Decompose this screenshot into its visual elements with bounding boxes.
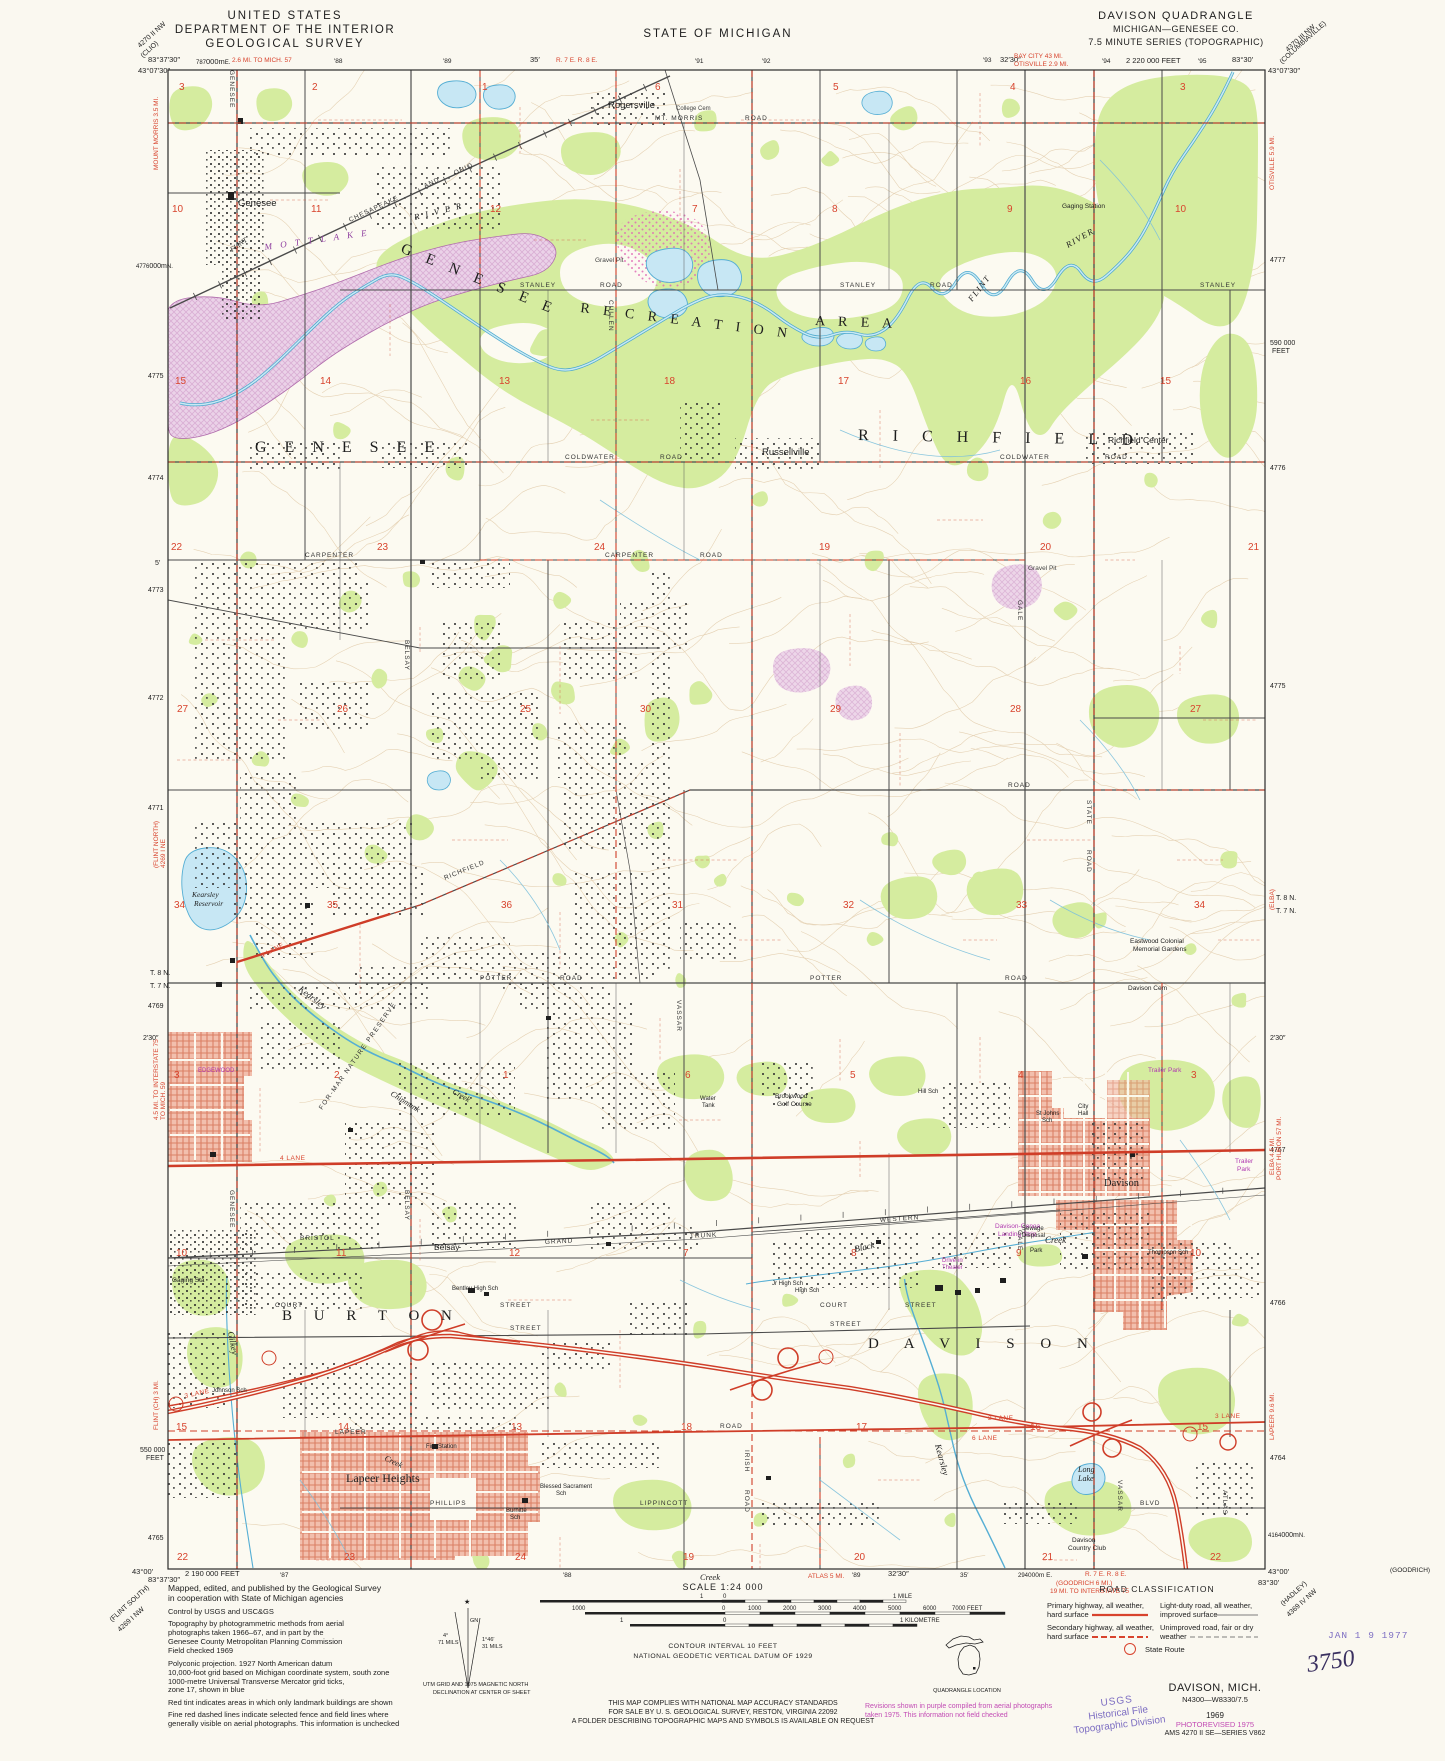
svg-text:G E N E S E E: G E N E S E E	[255, 439, 441, 456]
svg-text:′93: ′93	[983, 57, 992, 64]
svg-text:ROAD: ROAD	[743, 1490, 750, 1513]
svg-text:in cooperation with State of M: in cooperation with State of Michigan ag…	[168, 1593, 343, 1603]
svg-text:11: 11	[336, 1248, 347, 1259]
svg-text:12: 12	[509, 1248, 521, 1259]
svg-text:23: 23	[344, 1552, 356, 1563]
svg-text:Davison Cem: Davison Cem	[1128, 985, 1167, 992]
svg-text:4765: 4765	[148, 1535, 164, 1542]
svg-text:CARPENTER: CARPENTER	[305, 552, 354, 559]
svg-text:18: 18	[681, 1422, 693, 1433]
svg-text:zone 17, shown in blue: zone 17, shown in blue	[168, 1685, 245, 1694]
svg-text:28: 28	[1010, 704, 1022, 715]
svg-text:STREET: STREET	[500, 1302, 532, 1309]
svg-text:4775: 4775	[148, 373, 164, 380]
svg-text:15: 15	[1197, 1422, 1209, 1433]
svg-text:College Cem: College Cem	[676, 106, 711, 112]
svg-text:Jr High Sch: Jr High Sch	[772, 1281, 803, 1287]
svg-text:DAVISON, MICH.: DAVISON, MICH.	[1169, 1682, 1262, 1694]
svg-text:35′: 35′	[530, 55, 540, 64]
svg-text:TRUNK: TRUNK	[690, 1232, 718, 1240]
svg-text:590 000: 590 000	[1270, 340, 1295, 347]
svg-text:16: 16	[1030, 1422, 1042, 1433]
svg-text:18: 18	[664, 376, 676, 387]
svg-text:1°46′: 1°46′	[482, 1637, 494, 1643]
svg-text:10: 10	[172, 204, 184, 215]
svg-text:Drive-in: Drive-in	[942, 1258, 963, 1264]
svg-text:3000: 3000	[818, 1606, 832, 1612]
svg-text:OTISVILLE 2.9 MI.: OTISVILLE 2.9 MI.	[1014, 61, 1069, 68]
svg-text:10: 10	[176, 1248, 188, 1259]
svg-text:MOUNT MORRIS 3.5 MI.: MOUNT MORRIS 3.5 MI.	[153, 97, 160, 170]
svg-text:STATE OF MICHIGAN: STATE OF MICHIGAN	[643, 28, 792, 40]
svg-text:Creek: Creek	[1045, 1235, 1067, 1245]
svg-text:294000m E.: 294000m E.	[1018, 1572, 1052, 1579]
svg-text:Trailer: Trailer	[1235, 1158, 1254, 1165]
svg-text:83°30′: 83°30′	[1232, 55, 1254, 64]
svg-text:Eastwood Colonial: Eastwood Colonial	[1130, 938, 1184, 945]
svg-text:3: 3	[174, 1070, 180, 1081]
svg-text:CARPENTER: CARPENTER	[605, 552, 654, 559]
svg-text:CULLEN: CULLEN	[607, 300, 614, 332]
svg-text:COURT: COURT	[275, 1302, 303, 1309]
svg-text:TO MICH. 59: TO MICH. 59	[160, 1081, 167, 1120]
svg-text:Fine red dashed lines indicate: Fine red dashed lines indicate selected …	[168, 1710, 389, 1719]
svg-text:4772: 4772	[148, 695, 164, 702]
svg-text:Richfield Center: Richfield Center	[1108, 435, 1169, 445]
svg-text:16: 16	[1020, 376, 1032, 387]
svg-text:25: 25	[520, 704, 532, 715]
svg-text:23: 23	[377, 542, 389, 553]
svg-text:′92: ′92	[762, 58, 771, 65]
svg-text:7.5 MINUTE SERIES (TOPOGRAPHIC: 7.5 MINUTE SERIES (TOPOGRAPHIC)	[1088, 37, 1263, 47]
svg-text:71 MILS: 71 MILS	[438, 1640, 459, 1646]
svg-text:ROAD: ROAD	[660, 454, 683, 461]
svg-text:4: 4	[1010, 82, 1016, 93]
svg-text:26: 26	[337, 704, 349, 715]
svg-text:2 LANE: 2 LANE	[988, 1415, 1014, 1422]
svg-text:MICHIGAN—GENESEE CO.: MICHIGAN—GENESEE CO.	[1113, 24, 1239, 34]
svg-text:4775: 4775	[1270, 683, 1286, 690]
svg-text:State Route: State Route	[1145, 1645, 1185, 1654]
svg-text:FEET: FEET	[1272, 348, 1291, 355]
svg-text:Polyconic projection. 1927 N: Polyconic projection. 1927 North America…	[168, 1659, 332, 1668]
svg-text:Sch: Sch	[1042, 1118, 1052, 1124]
svg-text:GEOLOGICAL SURVEY: GEOLOGICAL SURVEY	[205, 38, 364, 50]
svg-text:32: 32	[843, 900, 855, 911]
svg-text:Trailer Park: Trailer Park	[1148, 1067, 1182, 1074]
svg-text:4164000mN.: 4164000mN.	[1268, 1532, 1305, 1539]
svg-text:9: 9	[1007, 204, 1013, 215]
svg-text:8: 8	[832, 204, 838, 215]
svg-text:550 000: 550 000	[140, 1447, 165, 1454]
svg-text:VASSAR: VASSAR	[1116, 1480, 1123, 1512]
svg-text:taken 1975. This information: taken 1975. This information not field c…	[865, 1712, 1008, 1719]
svg-text:(FLINT NORTH): (FLINT NORTH)	[153, 821, 160, 868]
svg-text:31: 31	[672, 900, 684, 911]
svg-text:ROAD: ROAD	[1005, 975, 1028, 982]
svg-text:Belsay: Belsay	[434, 1242, 460, 1252]
svg-text:NATIONAL GEODETIC VERTICAL DAT: NATIONAL GEODETIC VERTICAL DATUM OF 1929	[633, 1653, 812, 1660]
svg-text:T. 8 N.: T. 8 N.	[150, 970, 170, 977]
svg-text:BAY CITY 43 MI.: BAY CITY 43 MI.	[1014, 53, 1063, 60]
svg-text:4.5 MI. TO INTERSTATE 75: 4.5 MI. TO INTERSTATE 75	[153, 1039, 160, 1120]
svg-text:Davison: Davison	[1104, 1178, 1140, 1189]
svg-text:Brookwood: Brookwood	[775, 1093, 808, 1100]
svg-text:17: 17	[838, 376, 850, 387]
svg-text:10,000-foot grid based on Mich: 10,000-foot grid based on Michigan coord…	[168, 1668, 389, 1677]
svg-text:6: 6	[685, 1070, 691, 1081]
svg-text:BRISTOL: BRISTOL	[300, 1235, 335, 1242]
svg-text:Topography by photogrammetric: Topography by photogrammetric methods fr…	[168, 1619, 344, 1628]
svg-text:Park: Park	[1237, 1166, 1251, 1173]
svg-text:DEPARTMENT OF THE INTERIOR: DEPARTMENT OF THE INTERIOR	[175, 24, 395, 36]
svg-text:COLDWATER: COLDWATER	[1000, 454, 1050, 461]
svg-text:STREET: STREET	[830, 1321, 862, 1328]
svg-text:4766: 4766	[1270, 1300, 1286, 1307]
svg-text:4771: 4771	[148, 805, 164, 812]
svg-text:4764: 4764	[1270, 1455, 1286, 1462]
svg-text:Red tint indicates areas in wh: Red tint indicates areas in which only l…	[168, 1698, 393, 1707]
svg-text:AMS 4270 II SE—SERIES V862: AMS 4270 II SE—SERIES V862	[1165, 1730, 1266, 1737]
svg-text:Secondary highway, all weather: Secondary highway, all weather,	[1047, 1623, 1154, 1632]
svg-text:ELBA 4.5 MI.: ELBA 4.5 MI.	[1269, 1137, 1276, 1175]
svg-text:LAPEER 9.6 MI.: LAPEER 9.6 MI.	[1269, 1392, 1276, 1440]
svg-text:′89: ′89	[852, 1572, 861, 1579]
svg-text:Thompson Sch: Thompson Sch	[1148, 1250, 1188, 1256]
svg-text:3 LANE: 3 LANE	[1215, 1413, 1241, 1420]
svg-text:Theater: Theater	[942, 1265, 963, 1271]
svg-text:photographs taken 1966–67, and: photographs taken 1966–67, and in part b…	[168, 1628, 324, 1637]
svg-text:★: ★	[464, 1598, 470, 1606]
svg-text:5000: 5000	[888, 1606, 902, 1612]
svg-text:POTTER: POTTER	[810, 975, 842, 982]
svg-text:2.6 MI. TO MICH. 57: 2.6 MI. TO MICH. 57	[232, 57, 292, 64]
svg-text:STANLEY: STANLEY	[840, 282, 876, 289]
svg-text:STATE: STATE	[1085, 800, 1092, 825]
svg-text:PHOTOREVISED 1975: PHOTOREVISED 1975	[1176, 1720, 1254, 1729]
svg-text:ROAD: ROAD	[600, 282, 623, 289]
svg-text:COURT: COURT	[820, 1302, 848, 1309]
svg-text:2: 2	[312, 82, 318, 93]
svg-text:4269 I NE: 4269 I NE	[160, 838, 167, 868]
svg-text:improved surface: improved surface	[1160, 1610, 1218, 1619]
svg-text:Control by USGS and USC&GS: Control by USGS and USC&GS	[168, 1607, 274, 1616]
svg-text:ROAD: ROAD	[700, 552, 723, 559]
svg-text:Reservoir: Reservoir	[193, 899, 223, 908]
svg-text:3: 3	[1191, 1070, 1197, 1081]
svg-text:VASSAR: VASSAR	[675, 1000, 682, 1032]
svg-text:35′: 35′	[960, 1572, 969, 1579]
svg-text:6000: 6000	[923, 1606, 937, 1612]
svg-text:Lapeer Heights: Lapeer Heights	[346, 1471, 420, 1485]
svg-text:43°07′30″: 43°07′30″	[138, 66, 170, 75]
svg-text:29: 29	[830, 704, 842, 715]
svg-text:19: 19	[819, 542, 831, 553]
svg-text:generally visible on aerial ph: generally visible on aerial photographs.…	[168, 1719, 399, 1728]
svg-text:19: 19	[683, 1552, 695, 1563]
svg-text:Hall: Hall	[1078, 1111, 1088, 1117]
svg-text:Water: Water	[700, 1096, 716, 1102]
svg-text:Hill Sch: Hill Sch	[918, 1089, 938, 1095]
svg-text:PORT HURON 57 MI.: PORT HURON 57 MI.	[1276, 1116, 1283, 1180]
svg-text:6: 6	[655, 82, 661, 93]
svg-text:Field checked 1969: Field checked 1969	[168, 1646, 233, 1655]
svg-text:27: 27	[1190, 704, 1202, 715]
svg-text:7000 FEET: 7000 FEET	[952, 1606, 983, 1612]
svg-text:ATLAS 5 MI.: ATLAS 5 MI.	[808, 1573, 845, 1580]
svg-text:Lake: Lake	[1077, 1474, 1094, 1483]
svg-text:LAPEER: LAPEER	[335, 1429, 367, 1436]
svg-text:7: 7	[683, 1248, 689, 1259]
svg-text:13: 13	[511, 1422, 523, 1433]
svg-text:1 KILOMETRE: 1 KILOMETRE	[900, 1618, 940, 1624]
svg-text:hard surface: hard surface	[1047, 1610, 1089, 1619]
svg-text:10: 10	[1175, 204, 1187, 215]
svg-text:Golf Course: Golf Course	[777, 1101, 812, 1108]
svg-text:1969: 1969	[1206, 1711, 1224, 1720]
svg-text:Davison: Davison	[1072, 1537, 1096, 1544]
svg-text:CONTOUR INTERVAL 10 FEET: CONTOUR INTERVAL 10 FEET	[668, 1643, 777, 1650]
svg-text:′94: ′94	[1102, 58, 1111, 65]
svg-text:14: 14	[320, 376, 332, 387]
svg-text:UTM GRID AND 1975 MAGNETIC NOR: UTM GRID AND 1975 MAGNETIC NORTH	[423, 1682, 528, 1688]
svg-text:STANLEY: STANLEY	[520, 282, 556, 289]
svg-text:Unimproved road, fair or dry: Unimproved road, fair or dry	[1160, 1623, 1254, 1632]
svg-text:6 LANE: 6 LANE	[972, 1435, 998, 1442]
svg-text:N4300—W8330/7.5: N4300—W8330/7.5	[1182, 1695, 1248, 1704]
svg-text:21: 21	[1042, 1552, 1054, 1563]
svg-text:ROAD CLASSIFICATION: ROAD CLASSIFICATION	[1099, 1584, 1214, 1594]
svg-text:ROAD: ROAD	[1085, 850, 1092, 873]
svg-text:3: 3	[179, 82, 185, 93]
svg-text:BELSAY: BELSAY	[403, 640, 410, 671]
svg-text:OTISVILLE 5.9 MI.: OTISVILLE 5.9 MI.	[1269, 135, 1276, 190]
svg-text:GN: GN	[470, 1618, 478, 1624]
svg-text:A FOLDER DESCRIBING TOPOGRAPHI: A FOLDER DESCRIBING TOPOGRAPHIC MAPS AND…	[572, 1718, 875, 1725]
svg-text:ROAD: ROAD	[745, 115, 768, 122]
svg-text:15: 15	[176, 1422, 188, 1433]
svg-text:2000: 2000	[783, 1606, 797, 1612]
svg-text:4°: 4°	[443, 1633, 448, 1639]
svg-text:43°00′: 43°00′	[1268, 1567, 1290, 1576]
svg-text:Creek: Creek	[700, 1572, 720, 1582]
svg-text:BELSAY: BELSAY	[403, 1190, 410, 1221]
svg-text:1000: 1000	[572, 1606, 586, 1612]
svg-text:32′30″: 32′30″	[888, 1569, 909, 1578]
svg-text:10: 10	[1190, 1248, 1202, 1259]
svg-text:′88: ′88	[334, 58, 343, 65]
svg-text:24: 24	[515, 1552, 527, 1563]
svg-text:12: 12	[490, 204, 502, 215]
svg-text:Burhitte: Burhitte	[506, 1508, 527, 1514]
svg-text:Kearsley: Kearsley	[191, 890, 219, 899]
svg-text:STREET: STREET	[905, 1302, 937, 1309]
svg-text:2 220 000 FEET: 2 220 000 FEET	[1126, 56, 1181, 65]
svg-text:(GOODRICH): (GOODRICH)	[1390, 1567, 1430, 1574]
svg-text:20: 20	[1040, 542, 1052, 553]
svg-text:Genesee County Metropolitan Pl: Genesee County Metropolitan Planning Com…	[168, 1637, 342, 1646]
svg-text:Long: Long	[1077, 1465, 1094, 1474]
svg-text:Russellville: Russellville	[762, 447, 810, 458]
svg-text:Gaging Sta: Gaging Sta	[172, 1277, 205, 1284]
svg-text:T. 8 N.: T. 8 N.	[1276, 895, 1296, 902]
svg-text:weather: weather	[1159, 1632, 1187, 1641]
svg-text:City: City	[1078, 1104, 1088, 1110]
svg-text:Revisions shown in purple comp: Revisions shown in purple compiled from …	[865, 1703, 1053, 1710]
svg-text:DAVISON QUADRANGLE: DAVISON QUADRANGLE	[1098, 10, 1254, 22]
svg-text:Tank: Tank	[702, 1103, 716, 1109]
svg-text:20: 20	[854, 1552, 866, 1563]
svg-text:IRISH: IRISH	[743, 1450, 750, 1472]
svg-text:′87: ′87	[280, 1572, 289, 1579]
svg-text:(ELBA): (ELBA)	[1269, 889, 1276, 910]
svg-text:17: 17	[856, 1422, 868, 1433]
svg-text:D A V I S O N: D A V I S O N	[868, 1336, 1099, 1352]
svg-text:4777: 4777	[1270, 257, 1286, 264]
svg-text:THIS MAP COMPLIES WITH NATIONA: THIS MAP COMPLIES WITH NATIONAL MAP ACCU…	[608, 1700, 838, 1707]
svg-text:Rogersville: Rogersville	[608, 100, 655, 111]
svg-text:QUADRANGLE LOCATION: QUADRANGLE LOCATION	[933, 1688, 1001, 1694]
svg-text:4776: 4776	[1270, 465, 1286, 472]
svg-text:Mapped, edited, and published: Mapped, edited, and published by the Geo…	[168, 1583, 382, 1593]
svg-text:5: 5	[833, 82, 839, 93]
svg-text:Johnson Sch: Johnson Sch	[212, 1388, 247, 1394]
svg-text:Bentley High Sch: Bentley High Sch	[452, 1286, 498, 1292]
svg-text:2′30″: 2′30″	[1270, 1035, 1286, 1042]
svg-text:GENESEE: GENESEE	[228, 1190, 235, 1228]
svg-text:Genesee: Genesee	[238, 198, 277, 209]
svg-text:43°07′30″: 43°07′30″	[1268, 66, 1300, 75]
svg-text:4769: 4769	[148, 1003, 164, 1010]
svg-text:Park: Park	[1030, 1248, 1043, 1254]
svg-text:24: 24	[594, 542, 606, 553]
svg-text:Sewage: Sewage	[1022, 1226, 1044, 1232]
svg-text:1 MILE: 1 MILE	[893, 1594, 912, 1600]
svg-text:Primary highway, all weather,: Primary highway, all weather,	[1047, 1601, 1144, 1610]
svg-text:Gaging Station: Gaging Station	[1062, 203, 1105, 210]
svg-text:2′30″: 2′30″	[143, 1035, 159, 1042]
svg-text:A R E A: A R E A	[815, 314, 898, 332]
svg-text:11: 11	[311, 204, 322, 215]
svg-text:34: 34	[174, 900, 186, 911]
svg-text:Country Club: Country Club	[1068, 1545, 1106, 1552]
svg-text:BLVD: BLVD	[1140, 1500, 1161, 1507]
svg-text:T. 7 N.: T. 7 N.	[1276, 908, 1296, 915]
svg-text:Sch: Sch	[556, 1491, 566, 1497]
svg-text:STANLEY: STANLEY	[1200, 282, 1236, 289]
svg-text:13: 13	[499, 376, 511, 387]
svg-text:hard surface: hard surface	[1047, 1632, 1089, 1641]
svg-text:15: 15	[1160, 376, 1172, 387]
svg-text:ATLAS: ATLAS	[1221, 1490, 1228, 1515]
svg-text:R. 7 E. R. 8 E.: R. 7 E. R. 8 E.	[556, 57, 598, 64]
svg-text:COLDWATER: COLDWATER	[565, 454, 615, 461]
svg-text:UNITED STATES: UNITED STATES	[227, 10, 342, 22]
svg-text:ROAD: ROAD	[560, 975, 583, 982]
svg-text:Memorial Gardens: Memorial Gardens	[1133, 946, 1187, 953]
svg-text:SCALE 1:24 000: SCALE 1:24 000	[682, 1582, 763, 1592]
svg-text:FLINT (CH) 3 MI.: FLINT (CH) 3 MI.	[153, 1380, 160, 1430]
svg-text:Blessed Sacrament: Blessed Sacrament	[540, 1484, 592, 1490]
svg-text:3: 3	[1180, 82, 1186, 93]
svg-text:EDGEWOOD: EDGEWOOD	[198, 1068, 235, 1074]
svg-text:T. 7 N.: T. 7 N.	[150, 983, 170, 990]
svg-text:GRAND: GRAND	[545, 1238, 574, 1246]
svg-text:GALE: GALE	[1016, 600, 1023, 621]
svg-text:R. 7 E. R. 8 E.: R. 7 E. R. 8 E.	[1085, 1571, 1127, 1578]
svg-text:4: 4	[1018, 1070, 1024, 1081]
svg-text:′91: ′91	[695, 58, 704, 65]
svg-text:Gravel Pit: Gravel Pit	[1028, 565, 1057, 572]
svg-text:5: 5	[850, 1070, 856, 1081]
svg-text:Fire Station: Fire Station	[426, 1444, 457, 1450]
svg-text:1: 1	[503, 1070, 509, 1081]
svg-text:33: 33	[1016, 900, 1028, 911]
svg-text:High Sch: High Sch	[795, 1288, 819, 1294]
svg-text:ROAD: ROAD	[720, 1423, 743, 1430]
svg-text:35: 35	[327, 900, 339, 911]
svg-text:MT. MORRIS: MT. MORRIS	[655, 115, 703, 122]
svg-text:34: 34	[1194, 900, 1206, 911]
svg-text:Light-duty road, all weather,: Light-duty road, all weather,	[1160, 1601, 1252, 1610]
svg-text:DECLINATION AT CENTER OF SHEET: DECLINATION AT CENTER OF SHEET	[433, 1690, 531, 1696]
svg-text:22: 22	[171, 542, 183, 553]
svg-text:83°37′30″: 83°37′30″	[148, 55, 180, 64]
svg-text:36: 36	[501, 900, 513, 911]
svg-text:30: 30	[640, 704, 652, 715]
svg-text:31 MILS: 31 MILS	[482, 1644, 503, 1650]
svg-text:7: 7	[692, 204, 698, 215]
svg-text:ROAD: ROAD	[930, 282, 953, 289]
svg-text:5′: 5′	[155, 560, 161, 567]
svg-text:Disposal: Disposal	[1022, 1233, 1045, 1239]
svg-text:1: 1	[482, 82, 488, 93]
svg-text:POTTER: POTTER	[480, 975, 512, 982]
svg-text:′95: ′95	[1198, 58, 1207, 65]
svg-text:St Johns: St Johns	[1036, 1111, 1059, 1117]
svg-text:27: 27	[177, 704, 189, 715]
svg-text:ROAD: ROAD	[1105, 454, 1128, 461]
svg-text:B U R T O N: B U R T O N	[282, 1308, 461, 1324]
svg-text:ROAD: ROAD	[1008, 782, 1031, 789]
svg-text:22: 22	[1210, 1552, 1222, 1563]
svg-text:22: 22	[177, 1552, 189, 1563]
svg-text:STREET: STREET	[510, 1325, 542, 1332]
svg-text:2 190 000 FEET: 2 190 000 FEET	[185, 1569, 240, 1578]
svg-text:21: 21	[1248, 542, 1260, 553]
svg-text:FEET: FEET	[146, 1455, 165, 1462]
svg-text:4773: 4773	[148, 587, 164, 594]
svg-text:Gravel Pit: Gravel Pit	[595, 257, 624, 264]
svg-text:1000: 1000	[748, 1606, 762, 1612]
svg-text:GENESEE: GENESEE	[228, 70, 235, 108]
svg-text:Sch: Sch	[510, 1515, 520, 1521]
svg-text:FOR SALE BY U. S. GEOLOGICAL S: FOR SALE BY U. S. GEOLOGICAL SURVEY, RES…	[608, 1709, 837, 1716]
svg-text:LIPPINCOTT: LIPPINCOTT	[640, 1500, 688, 1507]
svg-text:4774: 4774	[148, 475, 164, 482]
svg-text:′89: ′89	[443, 58, 452, 65]
svg-text:PHILLIPS: PHILLIPS	[430, 1500, 467, 1507]
svg-text:83°30′: 83°30′	[1258, 1578, 1280, 1587]
svg-text:4 LANE: 4 LANE	[280, 1155, 306, 1162]
svg-text:JAN 1 9 1977: JAN 1 9 1977	[1328, 1630, 1408, 1641]
svg-text:15: 15	[175, 376, 187, 387]
svg-text:′88: ′88	[563, 1572, 572, 1579]
svg-text:4000: 4000	[853, 1606, 867, 1612]
